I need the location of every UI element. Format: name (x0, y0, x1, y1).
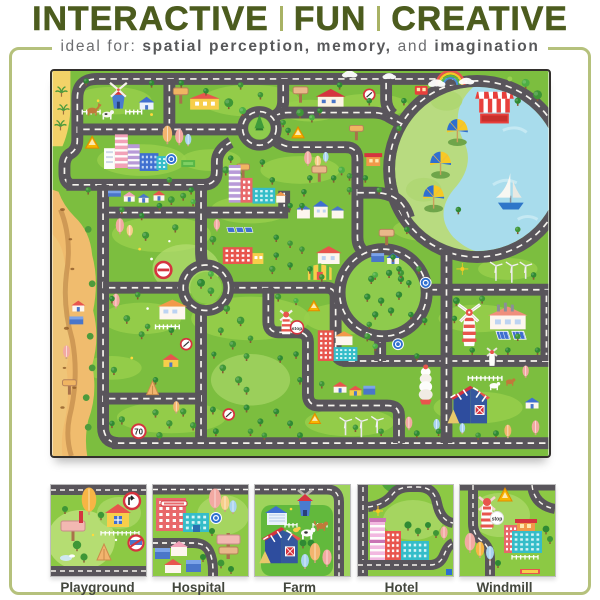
svg-text:70: 70 (134, 428, 143, 437)
svg-text:stop: stop (492, 517, 503, 523)
svg-text:stop: stop (292, 326, 302, 332)
